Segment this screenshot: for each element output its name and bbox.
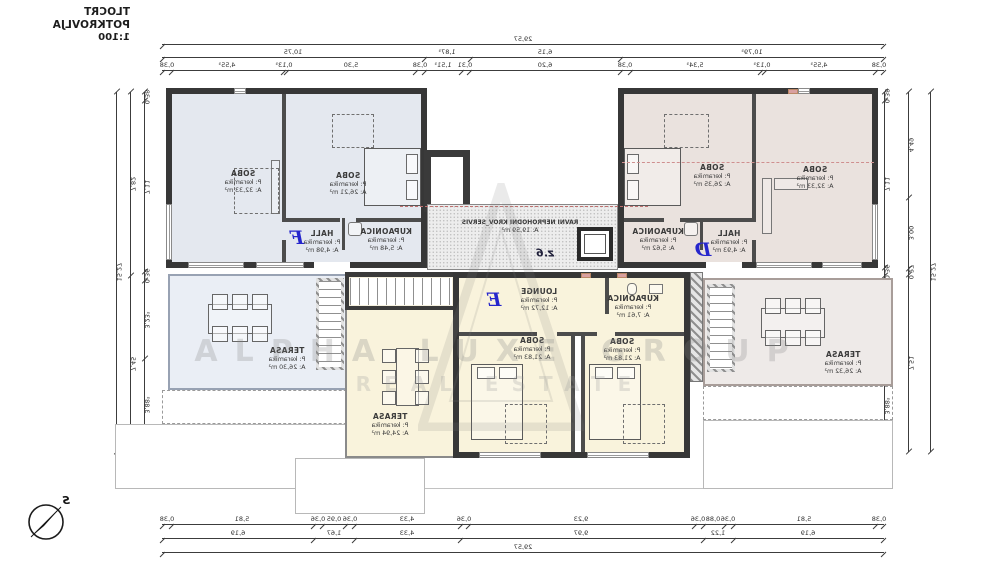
dim-label: 4,33	[400, 529, 414, 537]
wall	[624, 218, 664, 222]
dim-chain-bottom-detail: 0,385,810,360,950,364,330,369,230,360,88…	[162, 516, 884, 525]
table-group-f	[212, 300, 274, 342]
stairs-e-steps	[350, 278, 452, 305]
dim-label: 7,11	[883, 177, 891, 191]
room-label-f-kupaonica: KUPAONICA P: keramika A: 5,48 m²	[360, 227, 412, 253]
dim-label: 4,33	[400, 515, 414, 523]
room-floor: P: keramika	[224, 179, 261, 187]
window	[822, 262, 862, 268]
dim-label: 29,57	[514, 35, 533, 43]
bed-foot-dashed	[505, 404, 547, 444]
room-floor: P: keramika	[520, 297, 557, 305]
bed	[364, 148, 421, 206]
window	[479, 452, 541, 458]
pillow	[617, 367, 635, 379]
dim-segment: 5,81	[733, 516, 875, 525]
roof-area-value: A: 19,59 m²	[462, 227, 579, 235]
dim-label: 9,97	[574, 529, 588, 537]
wardrobe-dashed	[664, 114, 709, 148]
compass-north-letter: S	[62, 494, 70, 507]
section-line-ridge	[400, 206, 648, 207]
dim-segment: 10,79⁵	[620, 49, 884, 58]
pillow	[406, 154, 418, 174]
dim-chain-left-major: 7,827,45	[130, 92, 139, 452]
room-area: A: 26,35 m²	[693, 181, 730, 189]
room-floor: P: keramika	[693, 173, 730, 181]
washer	[684, 222, 698, 236]
stairs-e	[345, 272, 453, 310]
room-label-e-soba-left: SOBA P: keramika A: 21,83 m²	[513, 336, 550, 362]
chair	[785, 330, 801, 346]
chair	[382, 349, 396, 363]
stairs-f	[316, 278, 344, 370]
dim-label: 0,38	[872, 515, 886, 523]
dim-label: 3,00	[907, 226, 915, 240]
dim-label: 10,79⁵	[742, 48, 763, 56]
chair	[805, 330, 821, 346]
dim-segment: 0,38	[162, 516, 171, 525]
table-group-e	[387, 348, 429, 408]
unit-letter-e: E	[487, 289, 501, 311]
dim-segment: 4,33	[354, 530, 460, 539]
room-label-e-terasa: TERASA P: keramika A: 24,94 m²	[371, 412, 408, 438]
wall	[342, 218, 345, 250]
chair	[765, 330, 781, 346]
room-label-d-kupaonica: KUPAONICA P: keramika A: 5,62 m²	[632, 227, 684, 253]
room-area: A: 5,62 m²	[632, 245, 684, 253]
dim-segment: 0,36	[460, 516, 469, 525]
room-floor: P: keramika	[371, 422, 408, 430]
room-name: SOBA	[796, 165, 833, 175]
chair	[765, 298, 781, 314]
room-area: A: 4,98 m²	[304, 247, 341, 255]
dim-segment: 6,19	[733, 530, 884, 539]
room-name: KUPAONICA	[632, 227, 684, 237]
dim-label: 7,11	[143, 179, 151, 193]
drawing-title: TLOCRT POTKROVLJA 1:100	[14, 6, 130, 45]
lower-floor-line	[425, 488, 703, 489]
dim-label: 15,27	[929, 263, 937, 282]
room-name: KUPAONICA	[360, 227, 412, 237]
room-floor: P: keramika	[796, 175, 833, 183]
dim-segment: 7,11	[884, 101, 893, 268]
dim-segment: 15,27	[930, 92, 939, 452]
chair	[415, 370, 429, 384]
window	[188, 262, 244, 268]
dim-chain-top-detail: 0,384,55⁵0,13⁵5,300,381,51⁵0,316,200,385…	[162, 62, 884, 71]
room-floor: P: keramika	[304, 239, 341, 247]
lower-floor-center	[295, 458, 425, 514]
terrace-f	[168, 274, 347, 390]
roof-label: RAVNI NEPROHODNI KROV_SERVIS A: 19,59 m²	[462, 219, 579, 235]
lower-floor-dashed-right	[703, 386, 893, 420]
dim-label: 1,67	[326, 529, 340, 537]
dim-label: 6,19	[801, 529, 815, 537]
dim-chain-left-overall: 15,27	[116, 92, 125, 452]
chair	[212, 326, 228, 342]
room-floor: P: keramika	[711, 239, 748, 247]
dim-label: 0,95	[326, 515, 340, 523]
dim-segment: 9,23	[468, 516, 693, 525]
stairs-f-steps	[319, 281, 341, 367]
door-opening	[314, 262, 350, 268]
terrace-d	[703, 278, 893, 386]
dim-segment: 0,38	[162, 62, 171, 71]
pillow	[477, 367, 495, 379]
table-group-d	[765, 304, 827, 346]
shaft	[424, 150, 470, 212]
dim-chain-bottom-major: 6,191,674,339,971,226,19	[162, 530, 884, 539]
room-name: HALL	[711, 229, 748, 239]
pillow	[595, 367, 613, 379]
dim-chain-top-overall: 29,57	[162, 36, 884, 45]
room-label-d-hall: HALL P: keramika A: 4,93 m²	[711, 229, 748, 255]
section-line-d	[622, 162, 874, 163]
dim-segment: 0,36	[313, 516, 322, 525]
dim-segment: 0,36	[345, 516, 354, 525]
dim-label: 1,87⁵	[439, 48, 456, 56]
dim-label: 1,22	[711, 529, 725, 537]
dim-segment: 15,27	[116, 92, 125, 452]
wall	[356, 218, 421, 222]
room-floor: P: keramika	[824, 360, 861, 368]
dim-chain-right-major: 4,493,000,277,51	[908, 92, 917, 452]
room-name: TERASA	[824, 350, 861, 360]
room-name: SOBA	[513, 336, 550, 346]
window	[166, 204, 172, 260]
dim-segment: 4,55⁵	[764, 62, 875, 71]
room-area: A: 26,21 m²	[329, 189, 366, 197]
door-opening	[706, 262, 742, 268]
dim-label: 4,55⁵	[811, 61, 828, 69]
lower-floor-dashed-left	[162, 390, 372, 424]
pillow	[627, 154, 639, 174]
room-label-d-soba-right: SOBA P: keramika A: 32,33 m²	[796, 165, 833, 191]
dim-segment: 10,75	[162, 49, 424, 58]
window	[872, 204, 878, 260]
wall	[282, 94, 286, 222]
room-area: A: 26,30 m²	[268, 364, 305, 372]
dim-segment: 7,11	[144, 101, 153, 272]
dim-label: 10,75	[284, 48, 303, 56]
room-name: SOBA	[693, 163, 730, 173]
dim-segment: 7,51	[908, 275, 917, 452]
dim-label: 9,23	[574, 515, 588, 523]
skylight-inner	[584, 234, 606, 254]
dim-label: 4,55⁵	[218, 61, 235, 69]
dim-label: 5,34⁵	[686, 61, 703, 69]
room-area: A: 7,61 m²	[607, 312, 659, 320]
compass: S	[20, 494, 76, 550]
dim-segment: 4,33	[354, 516, 460, 525]
dim-segment: 29,57	[162, 544, 884, 553]
room-floor: P: keramika	[603, 347, 640, 355]
roof-vent	[581, 273, 591, 278]
room-floor: P: keramika	[513, 346, 550, 354]
pillow	[499, 367, 517, 379]
room-name: KUPAONICA	[607, 294, 659, 304]
dim-label: 3,88⁵	[143, 397, 151, 414]
room-name: LOUNGE	[520, 287, 557, 297]
flat-roof-service-area	[427, 204, 618, 270]
pillow	[627, 180, 639, 200]
dim-segment: 7,82	[130, 92, 139, 276]
hatch-wall-strip	[690, 272, 703, 382]
window	[256, 262, 304, 268]
dim-chain-bottom-overall: 29,57	[162, 544, 884, 553]
room-area: A: 21,83 m²	[513, 354, 550, 362]
room-name: TERASA	[371, 412, 408, 422]
wall	[282, 240, 286, 262]
dim-segment: 0,38	[415, 62, 424, 71]
roof-vent	[617, 273, 627, 278]
room-floor: P: keramika	[268, 356, 305, 364]
dim-segment: 5,34⁵	[630, 62, 761, 71]
room-label-e-kupaonica: KUPAONICA P: keramika A: 7,61 m²	[607, 294, 659, 320]
bed-foot-dashed	[623, 404, 665, 444]
dim-label: 7,45	[129, 357, 137, 371]
dim-segment: 1,67	[313, 530, 354, 539]
chair	[785, 298, 801, 314]
dim-label: 15,27	[115, 263, 123, 282]
room-label-d-soba-left: SOBA P: keramika A: 26,35 m²	[693, 163, 730, 189]
room-label-f-soba-left: SOBA P: keramika A: 32,33 m²	[224, 169, 261, 195]
dim-chain-right-overall: 15,27	[930, 92, 939, 452]
drawing-scale: 1:100	[14, 32, 130, 45]
roof-name: RAVNI NEPROHODNI KROV_SERVIS	[462, 219, 579, 227]
dim-label: 6,20	[537, 61, 551, 69]
wardrobe-dashed	[332, 114, 374, 148]
chair	[232, 294, 248, 310]
room-name: SOBA	[224, 169, 261, 179]
dim-segment: 4,49	[908, 92, 917, 198]
skylight	[577, 227, 613, 261]
roof-vent	[788, 89, 798, 94]
room-name: SOBA	[329, 171, 366, 181]
dim-segment: 0,95	[322, 516, 345, 525]
wall-divider	[571, 336, 585, 452]
dim-label: 4,49	[907, 138, 915, 152]
dim-segment: 1,51⁵	[424, 62, 461, 71]
chair	[415, 391, 429, 405]
room-name: TERASA	[268, 346, 305, 356]
dim-label: 5,30	[343, 61, 357, 69]
room-floor: P: keramika	[632, 237, 684, 245]
dim-label: 29,57	[514, 543, 533, 551]
wall	[615, 332, 684, 336]
room-area: A: 21,83 m²	[603, 355, 640, 363]
pillow	[406, 180, 418, 200]
dim-segment: 9,97	[460, 530, 703, 539]
dim-segment: 1,87⁵	[424, 49, 470, 58]
dim-segment: 6,20	[469, 62, 620, 71]
room-floor: P: keramika	[360, 237, 412, 245]
dim-segment: 3,00	[908, 198, 917, 269]
room-area: A: 32,33 m²	[224, 187, 261, 195]
window	[587, 452, 649, 458]
room-floor: P: keramika	[329, 181, 366, 189]
room-label-f-hall: HALL P: keramika A: 4,98 m²	[304, 229, 341, 255]
dim-label: 0,88	[706, 515, 720, 523]
dim-segment: 0,31	[461, 62, 469, 71]
unit-letter-d: D	[695, 239, 711, 261]
stairs-d	[707, 284, 735, 372]
dim-chain-left-detail: 0,387,110,363,23⁵3,88⁵	[144, 92, 153, 452]
dim-segment: 3,23⁵	[144, 281, 153, 359]
chair	[252, 294, 268, 310]
unit-letter-f: F	[290, 227, 304, 249]
chair	[415, 349, 429, 363]
wall	[752, 240, 756, 262]
dim-label: 7,82	[129, 177, 137, 191]
chair	[382, 391, 396, 405]
dim-segment: 0,36	[694, 516, 703, 525]
sink	[649, 284, 663, 294]
dim-chain-top-major: 10,751,87⁵6,1510,79⁵	[162, 49, 884, 58]
dim-label: 0,38	[872, 61, 886, 69]
dim-segment: 0,38	[875, 62, 884, 71]
room-area: A: 26,32 m²	[824, 368, 861, 376]
dim-segment: 5,81	[171, 516, 313, 525]
dim-label: 6,19	[230, 529, 244, 537]
wall	[282, 218, 340, 222]
room-label-f-soba-right: SOBA P: keramika A: 26,21 m²	[329, 171, 366, 197]
window	[756, 262, 812, 268]
lower-floor-right	[703, 420, 893, 489]
room-area: A: 5,48 m²	[360, 245, 412, 253]
dim-label: 7,51	[907, 356, 915, 370]
room-area: A: 12,72 m²	[520, 305, 557, 313]
dim-label: 6,15	[538, 48, 552, 56]
dim-segment: 6,15	[470, 49, 620, 58]
dim-label: 5,81	[235, 515, 249, 523]
room-area: A: 24,94 m²	[371, 430, 408, 438]
dim-segment: 0,38	[875, 516, 884, 525]
dim-segment: 4,55⁵	[171, 62, 282, 71]
room-area: A: 32,33 m²	[796, 183, 833, 191]
chair	[212, 294, 228, 310]
room-label-e-lounge: LOUNGE P: keramika A: 12,72 m²	[520, 287, 557, 313]
dim-label: 3,23⁵	[143, 311, 151, 328]
room-label-d-terasa: TERASA P: keramika A: 26,32 m²	[824, 350, 861, 376]
chair	[382, 370, 396, 384]
wardrobe	[762, 178, 772, 234]
room-label-f-terasa: TERASA P: keramika A: 26,30 m²	[268, 346, 305, 372]
wall	[752, 94, 756, 222]
dim-segment: 6,19	[162, 530, 313, 539]
window	[234, 88, 246, 94]
room-area: A: 4,93 m²	[711, 247, 748, 255]
room-label-e-soba-right: SOBA P: keramika A: 21,83 m²	[603, 337, 640, 363]
floor-plan-canvas: TLOCRT POTKROVLJA 1:100 29,57 10,751,87⁵…	[0, 0, 1000, 566]
window	[798, 88, 810, 94]
bed	[624, 148, 681, 206]
chair	[805, 298, 821, 314]
dim-segment: 1,22	[703, 530, 733, 539]
dim-label: 1,51⁵	[434, 61, 451, 69]
drawing-title-text: TLOCRT POTKROVLJA	[14, 6, 130, 32]
room-floor: P: keramika	[607, 304, 659, 312]
room-name: HALL	[304, 229, 341, 239]
stairs-d-steps	[710, 287, 732, 369]
room-name: SOBA	[603, 337, 640, 347]
chair	[232, 326, 248, 342]
dim-segment: 0,36	[724, 516, 733, 525]
chair	[252, 326, 268, 342]
dim-segment: 5,30	[286, 62, 415, 71]
roof-mark: z.6	[536, 247, 554, 260]
dim-segment: 29,57	[162, 36, 884, 45]
dim-label: 5,81	[797, 515, 811, 523]
dim-segment: 0,38	[620, 62, 629, 71]
